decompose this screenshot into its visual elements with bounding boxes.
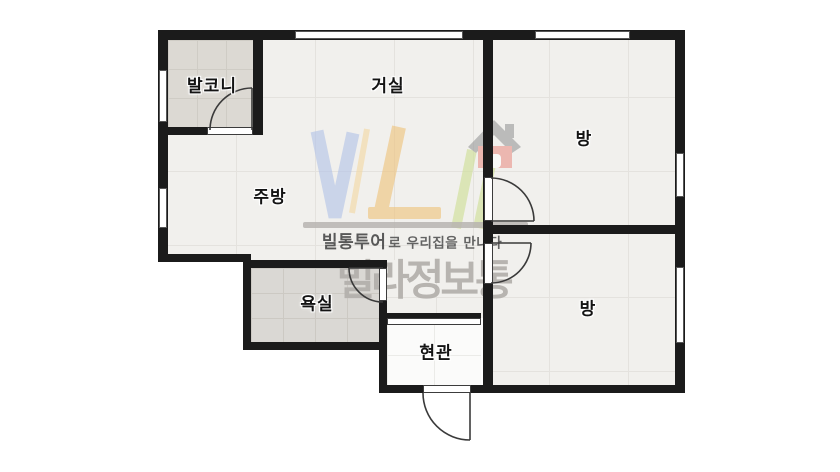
window-living-top: [295, 31, 463, 39]
wall-bathroom-bottom: [243, 342, 387, 350]
room-label-bathroom: 욕실: [300, 290, 333, 315]
wall-bathroom-top: [243, 260, 387, 268]
wall-kitchen-bottom: [158, 254, 251, 262]
wall-bathroom-left: [243, 254, 251, 350]
window-balcony-left: [159, 70, 167, 122]
threshold-bottom-bedroom-door: [484, 243, 493, 284]
room-label-entry: 현관: [419, 339, 452, 364]
threshold-balcony-door: [207, 127, 253, 135]
window-bedroom-top-right: [676, 153, 684, 197]
front-door: [423, 393, 470, 440]
logo-letter-l-icon: [381, 127, 399, 211]
threshold-bathroom-door: [379, 268, 387, 301]
front-door-arc: [423, 393, 470, 440]
floor-plan: 빌통투어로 우리집을 만나다 빌라정보통: [0, 0, 840, 472]
house-icon: [468, 120, 521, 168]
room-label-bottom-bedroom: 방: [580, 295, 597, 320]
window-kitchen-left: [159, 188, 167, 228]
room-label-kitchen: 주방: [253, 183, 286, 208]
threshold-top-bedroom-door: [484, 177, 493, 221]
wall-balcony-right: [253, 30, 263, 135]
logo-letter-l-foot: [368, 207, 441, 219]
threshold-front-door: [423, 385, 471, 393]
window-bedroom-bottom-right: [676, 267, 684, 343]
wall-bedroom-divider: [483, 225, 685, 234]
room-label-balcony: 발코니: [187, 72, 237, 97]
room-label-top-bedroom: 방: [576, 125, 593, 150]
room-label-living: 거실: [371, 72, 404, 97]
logo-letter-v-icon: [317, 131, 353, 217]
logo-green-slash-icon: [456, 150, 472, 228]
window-bedroom-top: [535, 31, 630, 39]
threshold-entry-step: [387, 318, 481, 325]
watermark-logo: [300, 115, 540, 238]
